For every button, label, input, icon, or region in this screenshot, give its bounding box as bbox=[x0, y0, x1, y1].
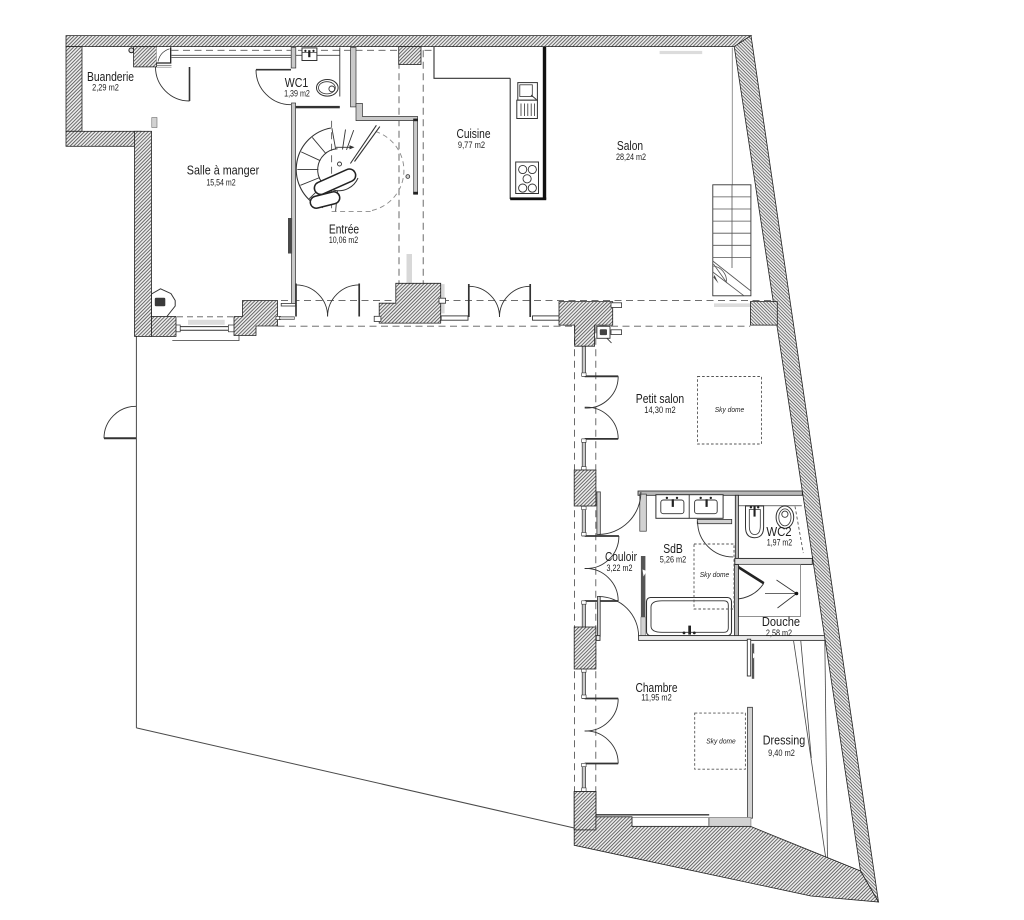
svg-text:3,22 m2: 3,22 m2 bbox=[607, 563, 633, 573]
svg-text:Salon: Salon bbox=[617, 138, 643, 153]
svg-text:Douche: Douche bbox=[762, 614, 800, 629]
svg-text:15,54 m2: 15,54 m2 bbox=[206, 178, 235, 188]
svg-text:14,30 m2: 14,30 m2 bbox=[644, 405, 675, 415]
svg-text:Sky dome: Sky dome bbox=[706, 737, 736, 746]
svg-text:9,40 m2: 9,40 m2 bbox=[768, 748, 795, 758]
svg-text:2,58 m2: 2,58 m2 bbox=[766, 628, 792, 638]
svg-text:Sky dome: Sky dome bbox=[715, 405, 745, 414]
svg-text:5,26 m2: 5,26 m2 bbox=[660, 555, 687, 565]
svg-text:1,97 m2: 1,97 m2 bbox=[767, 538, 792, 548]
svg-text:Petit salon: Petit salon bbox=[636, 391, 684, 406]
svg-text:11,95 m2: 11,95 m2 bbox=[641, 693, 671, 703]
svg-text:Dressing: Dressing bbox=[763, 733, 805, 748]
svg-text:9,77 m2: 9,77 m2 bbox=[458, 140, 485, 150]
svg-text:Salle à manger: Salle à manger bbox=[187, 163, 260, 178]
svg-text:1,39 m2: 1,39 m2 bbox=[284, 89, 310, 99]
svg-text:28,24 m2: 28,24 m2 bbox=[616, 152, 646, 162]
svg-text:10,06 m2: 10,06 m2 bbox=[329, 235, 358, 245]
svg-text:Cuisine: Cuisine bbox=[456, 126, 490, 141]
svg-text:2,29 m2: 2,29 m2 bbox=[92, 83, 119, 93]
svg-text:Couloir: Couloir bbox=[605, 549, 638, 564]
svg-text:Sky dome: Sky dome bbox=[700, 570, 730, 579]
